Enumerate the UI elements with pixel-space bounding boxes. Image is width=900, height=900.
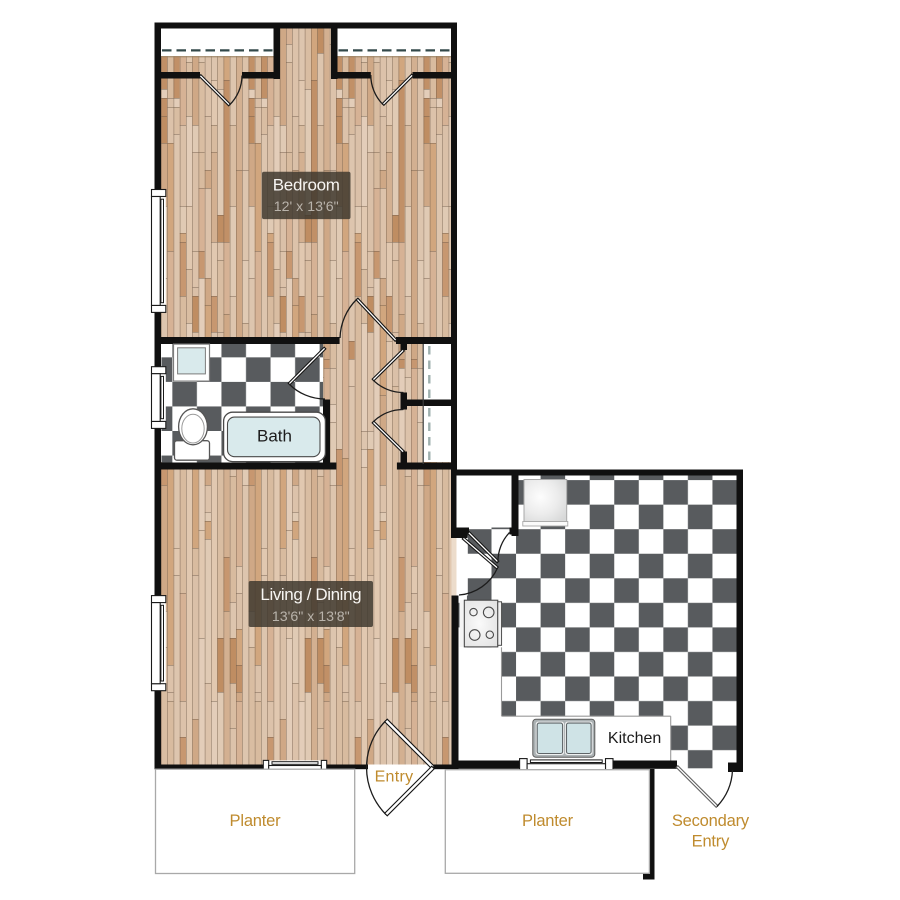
svg-text:Entry: Entry xyxy=(692,832,730,850)
svg-text:Bath: Bath xyxy=(257,427,292,446)
svg-text:Living / Dining: Living / Dining xyxy=(260,585,361,604)
svg-text:12' x 13'6": 12' x 13'6" xyxy=(274,199,339,215)
svg-text:Kitchen: Kitchen xyxy=(608,730,661,747)
svg-text:13'6" x 13'8": 13'6" x 13'8" xyxy=(272,609,350,625)
svg-text:Planter: Planter xyxy=(522,812,574,830)
svg-text:Planter: Planter xyxy=(230,812,282,830)
svg-text:Entry: Entry xyxy=(375,769,414,786)
svg-text:Bedroom: Bedroom xyxy=(273,176,340,195)
svg-text:Secondary: Secondary xyxy=(672,812,750,830)
